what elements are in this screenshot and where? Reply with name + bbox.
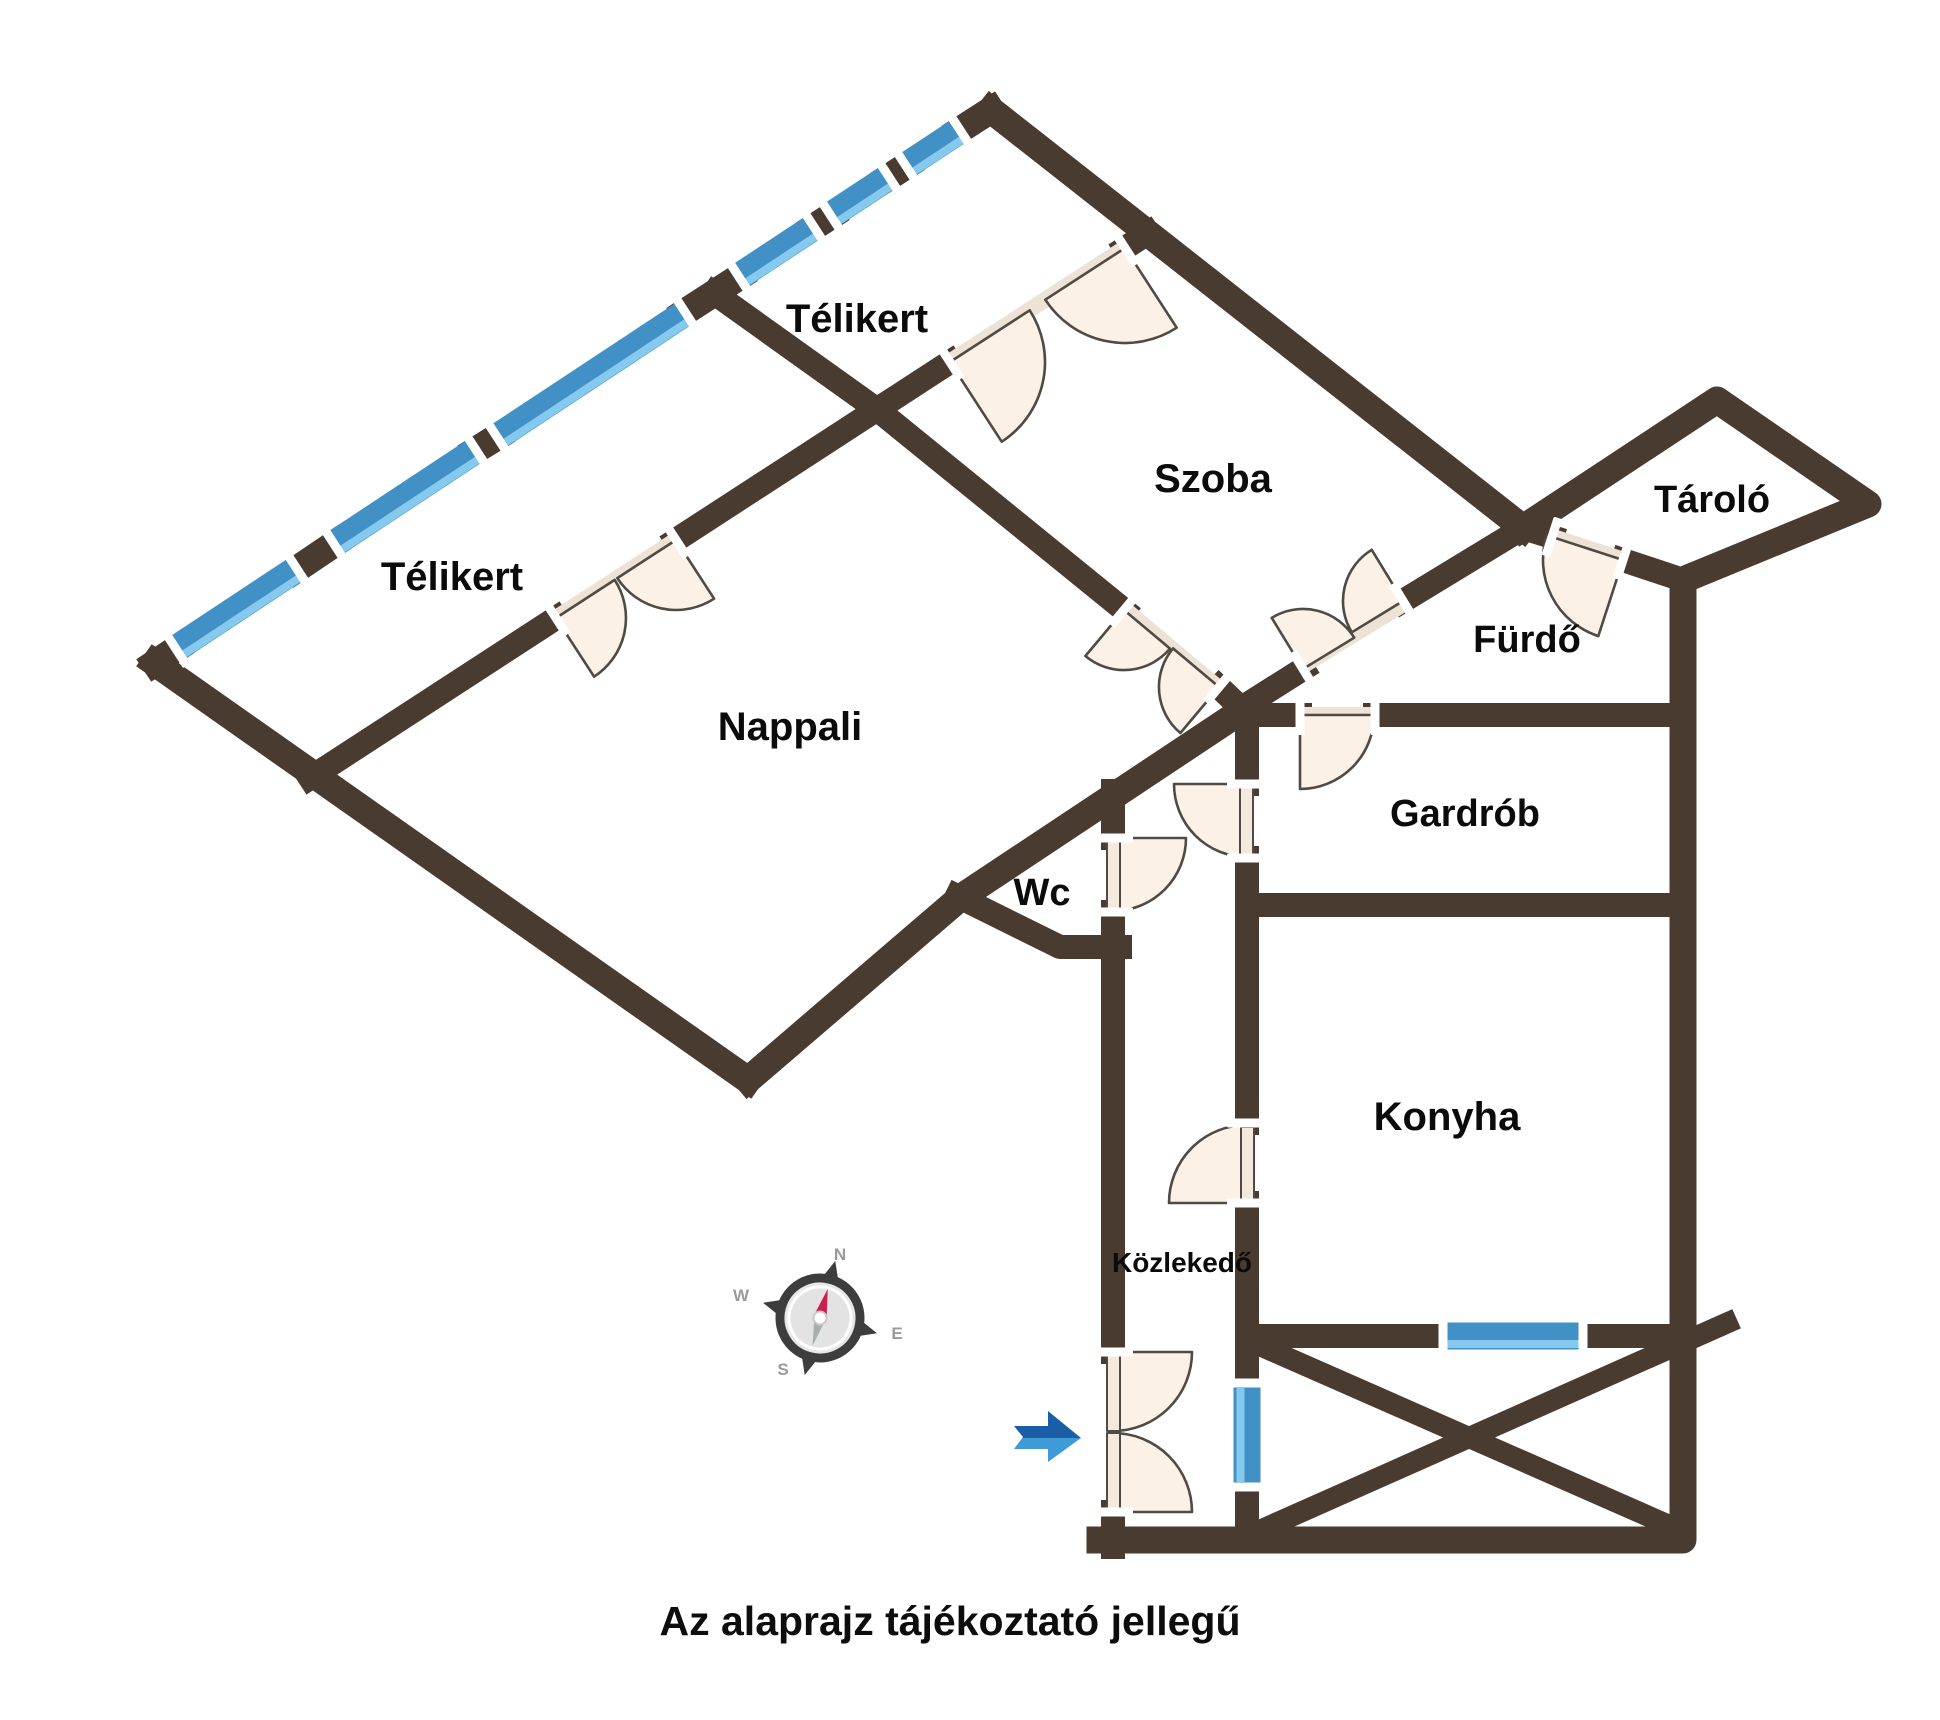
door-jamb xyxy=(1093,1508,1133,1517)
door-jamb xyxy=(1227,1483,1267,1492)
room-label-telikert-top: Télikert xyxy=(786,297,928,341)
floor-plan-drawing: TélikertTélikertSzobaNappaliWcFürdőTárol… xyxy=(0,0,1940,1720)
wall xyxy=(676,362,950,540)
window xyxy=(327,439,484,555)
door-jamb xyxy=(1093,908,1133,917)
door-swing xyxy=(617,540,714,610)
room-label-konyha: Konyha xyxy=(1374,1095,1521,1139)
door-swing xyxy=(1113,1433,1192,1512)
door-jamb xyxy=(1227,854,1267,863)
compass-rose: NESW xyxy=(733,1245,903,1390)
door-swing xyxy=(1272,609,1355,669)
room-label-gardrob: Gardrób xyxy=(1390,793,1540,835)
door-leaf xyxy=(1107,840,1120,910)
door-swing xyxy=(1300,715,1374,789)
door-jamb xyxy=(1227,1119,1267,1128)
doors-layer xyxy=(556,248,1623,1512)
symbols-layer: NESW xyxy=(733,1245,1081,1462)
door-jamb xyxy=(1371,695,1380,735)
window xyxy=(168,558,304,660)
compass-letter-e: E xyxy=(891,1324,902,1343)
wall xyxy=(1403,528,1523,601)
compass-body xyxy=(748,1246,893,1391)
wall xyxy=(297,544,334,569)
room-label-wc: Wc xyxy=(1014,872,1071,914)
wall xyxy=(155,663,748,1080)
door-swing xyxy=(1169,1125,1247,1203)
door-leaf xyxy=(1107,1433,1120,1510)
door-jamb xyxy=(1227,780,1267,789)
door-swing xyxy=(1085,610,1170,670)
door-jamb xyxy=(1439,1316,1448,1356)
room-label-telikert-left: Télikert xyxy=(381,555,523,599)
room-label-kozlekedo: Közlekedő xyxy=(1112,1247,1252,1278)
door-swing xyxy=(1113,1352,1192,1431)
door-jamb xyxy=(1579,1316,1588,1356)
wall xyxy=(310,618,556,778)
window xyxy=(1234,1383,1261,1487)
door-jamb xyxy=(1296,695,1305,735)
compass-letter-n: N xyxy=(834,1245,846,1264)
disclaimer-text: Az alaprajz tájékoztató jellegű xyxy=(370,1598,1530,1645)
window xyxy=(490,302,693,449)
wall xyxy=(1219,687,1243,710)
window xyxy=(1443,1323,1583,1350)
room-label-nappali: Nappali xyxy=(718,705,862,749)
door-swing xyxy=(1045,248,1176,343)
entrance-arrow-icon xyxy=(1014,1411,1081,1462)
door-jamb xyxy=(1227,1379,1267,1388)
door-leaf xyxy=(1240,786,1253,856)
door-swing xyxy=(950,310,1045,441)
door-jamb xyxy=(1093,1348,1133,1357)
room-label-furdo: Fürdő xyxy=(1473,619,1581,661)
compass-letter-s: S xyxy=(777,1360,788,1379)
door-swing xyxy=(1113,838,1186,911)
floor-plan-page: TélikertTélikertSzobaNappaliWcFürdőTárol… xyxy=(0,0,1940,1720)
door-jamb xyxy=(1093,834,1133,843)
wall xyxy=(1243,669,1303,707)
wall xyxy=(1254,1323,1727,1533)
labels-layer: TélikertTélikertSzobaNappaliWcFürdőTárol… xyxy=(381,297,1770,1278)
door-jamb xyxy=(1227,1199,1267,1208)
compass-letter-w: W xyxy=(733,1286,750,1305)
door-leaf xyxy=(1241,1127,1254,1201)
wall xyxy=(748,710,1243,1080)
room-label-szoba: Szoba xyxy=(1154,457,1273,501)
door-leaf xyxy=(1107,1354,1120,1431)
wall xyxy=(1623,560,1683,580)
room-label-tarolo: Tároló xyxy=(1654,479,1770,521)
